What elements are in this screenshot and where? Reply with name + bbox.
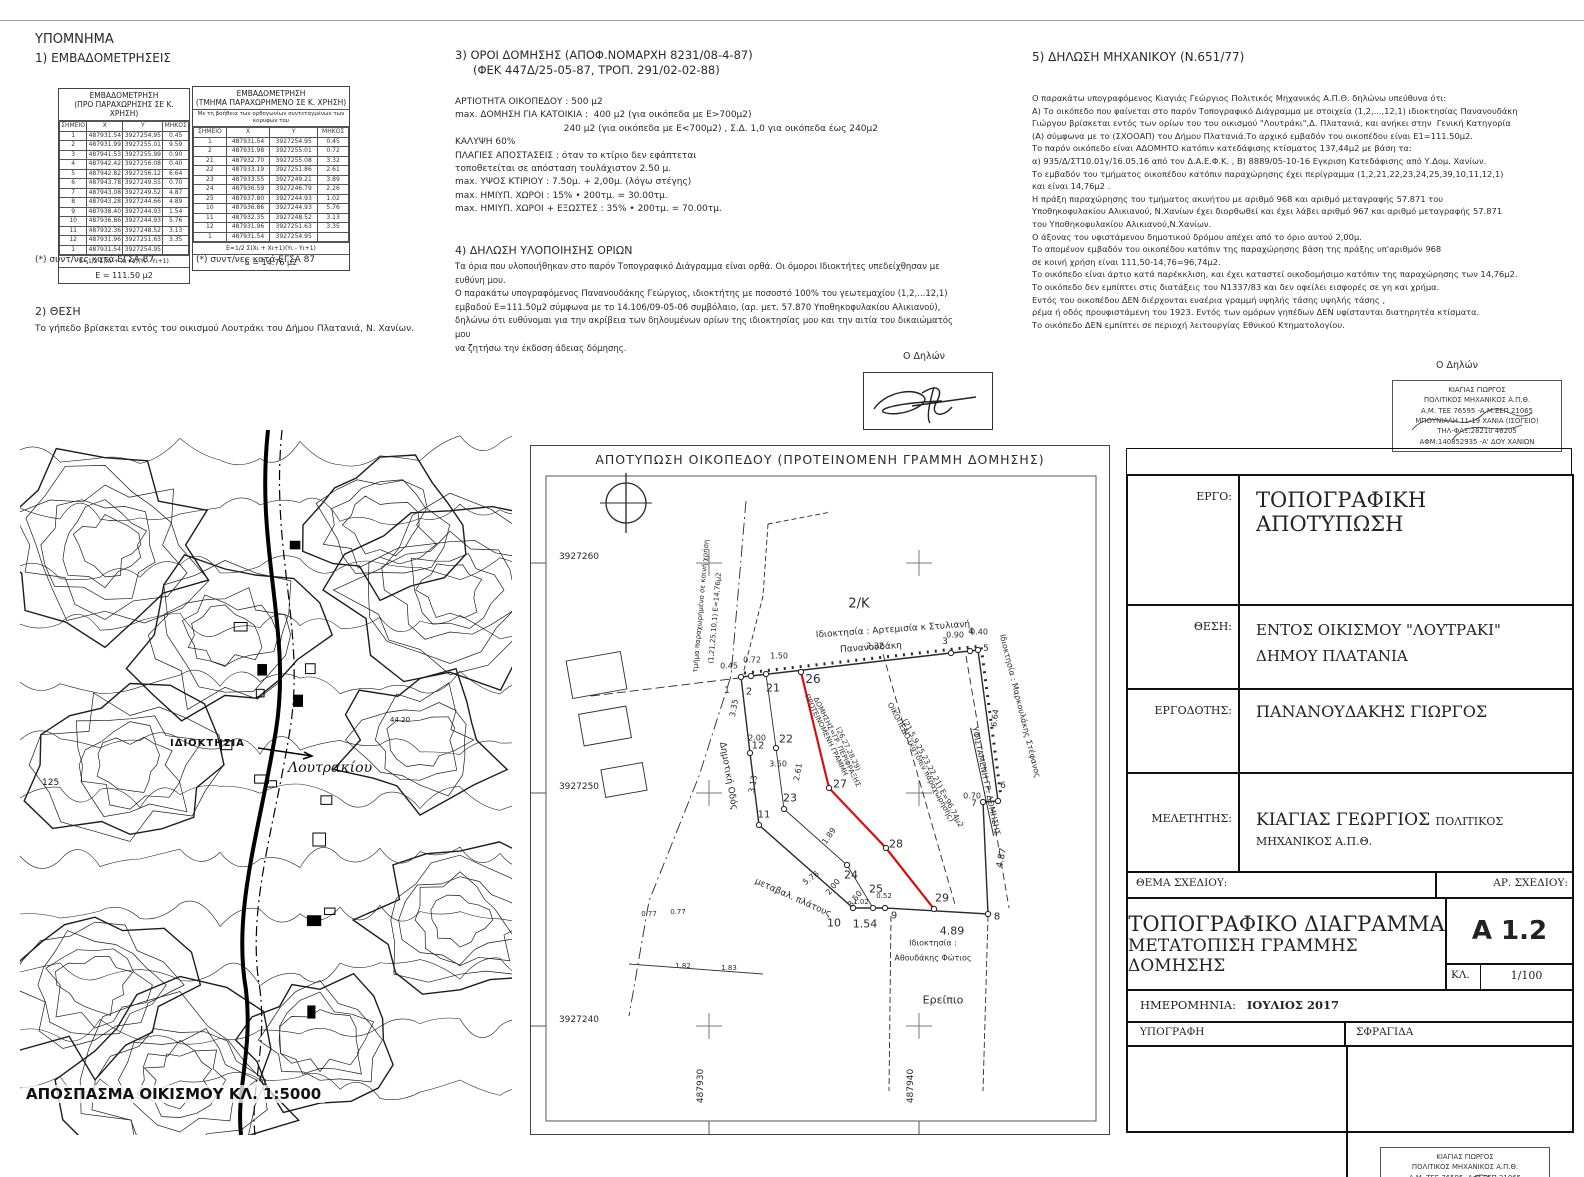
terms-lines: ΑΡΤΙΟΤΗΤΑ ΟΙΚΟΠΕΔΟΥ : 500 μ2max. ΔΟΜΗΣΗ … xyxy=(455,96,935,217)
table-row: 1487931.543927254.950.45 xyxy=(194,137,349,147)
plan-label: Αθουδάκης Φώτιος xyxy=(894,954,971,963)
title-block: ΕΡΓΟ: ΤΟΠΟΓΡΑΦΙΚΗ ΑΠΟΤΥΠΩΣΗ ΘΕΣΗ: ΕΝΤΟΣ … xyxy=(1120,448,1577,1135)
cell: 487936.59 xyxy=(226,185,269,195)
tb-stamp-label: ΣΦΡΑΓΙΔΑ xyxy=(1346,1023,1572,1045)
cell: 7 xyxy=(60,188,87,198)
table-row: 10487936.863927244.935.76 xyxy=(194,204,349,214)
cell: 3.32 xyxy=(318,156,349,166)
table-row: 21487932.703927255.083.32 xyxy=(194,156,349,166)
settlement-map: ΙΔΙΟΚΤΗΣΙΑ Λουτρακίου 44.20 125 ΑΠΟΣΠΑΣΜ… xyxy=(20,430,512,1135)
cell: 3.89 xyxy=(318,175,349,185)
table1-title: ΕΜΒΑΔΟΜΕΤΡΗΣΗ(ΠΡΟ ΠΑΡΑΧΩΡΗΣΗΣ ΣΕ Κ. ΧΡΗΣ… xyxy=(59,89,189,121)
cell: 487931.54 xyxy=(226,137,269,147)
plan-label: 0.72 xyxy=(743,656,761,665)
cell: 2.61 xyxy=(318,166,349,176)
plan-label: 2.61 xyxy=(792,762,804,781)
cell: 3927254.95 xyxy=(270,137,318,147)
table2-subtitle: Με τη βοήθεια των ορθογωνίων συντεταγμέν… xyxy=(193,110,349,127)
cell: 3927248.52 xyxy=(123,226,163,236)
cell: 3927248.52 xyxy=(270,213,318,223)
tb-signature-label: ΥΠΟΓΡΑΦΗ xyxy=(1128,1023,1346,1045)
plan-y-coordinate: 3927240 xyxy=(559,1015,599,1025)
table-row: 3487941.533927255.990.90 xyxy=(60,150,189,160)
cell: 3927256.12 xyxy=(123,169,163,179)
cell: 21 xyxy=(194,156,227,166)
tb-drawing-title: ΤΟΠΟΓΡΑΦΙΚΟ ΔΙΑΓΡΑΜΜΑ ΜΕΤΑΤΟΠΙΣΗ ΓΡΑΜΜΗΣ… xyxy=(1128,899,1447,989)
table2-formula: Ε=1/2 Σ(Χι + Χι+1)(Υι - Υι+1) xyxy=(193,242,349,254)
plan-label: 28 xyxy=(889,838,903,851)
cell: 3927244.93 xyxy=(270,204,318,214)
cell xyxy=(163,245,189,255)
plan-label: 27 xyxy=(833,778,847,791)
section2-title: 2) ΘΕΣΗ xyxy=(35,305,81,318)
tb-row-date: ΗΜΕΡΟΜΗΝΙΑ: ΙΟΥΛΙΟΣ 2017 xyxy=(1128,991,1572,1023)
cell: 10 xyxy=(194,204,227,214)
cell: 2 xyxy=(60,141,87,151)
tb-drawing-title-1: ΤΟΠΟΓΡΑΦΙΚΟ ΔΙΑΓΡΑΜΜΑ xyxy=(1128,912,1444,936)
plan-label: μεταβαλ. πλάτους xyxy=(753,877,833,920)
tb-thesi-line1: ΕΝΤΟΣ ΟΙΚΙΣΜΟΥ "ΛΟΥΤΡΑΚΙ" xyxy=(1256,621,1501,639)
cell: 3.13 xyxy=(318,213,349,223)
plan-label: 0.77 xyxy=(641,910,657,918)
cell: 0.45 xyxy=(318,137,349,147)
tb-label-thesi: ΘΕΣΗ: xyxy=(1128,606,1240,688)
table-row: 11487932.353927248.523.13 xyxy=(194,213,349,223)
engineer-stamp-top: ΚΙΑΓΙΑΣ ΓΙΩΡΓΟΣΠΟΛΙΤΙΚΟΣ ΜΗΧΑΝΙΚΟΣ Α.Π.Θ… xyxy=(1392,380,1562,452)
plan-label: ΥΦΙΣΤΑΜΕΝΗ ΓΡ. ΔΟΜΗΣΗΣ xyxy=(970,726,1002,836)
plan-label: 4.87 xyxy=(995,847,1009,869)
cell: 487932.70 xyxy=(226,156,269,166)
table1: ΣΗΜΕΙΟ Χ Υ ΜΗΚΟΣ 1487931.543927254.950.4… xyxy=(59,121,189,255)
cell: 4 xyxy=(60,160,87,170)
cell: 3.35 xyxy=(318,223,349,233)
plan-label: 4.89 xyxy=(940,925,965,938)
tb-thema-label: ΘΕΜΑ ΣΧΕΔΙΟΥ: xyxy=(1128,873,1437,897)
scan-edge-line xyxy=(0,20,1584,21)
decl-limits-lines: Τα όρια που υλοποιήθηκαν στο παρόν Τοπογ… xyxy=(455,261,955,356)
tb-row-ergo: ΕΡΓΟ: ΤΟΠΟΓΡΑΦΙΚΗ ΑΠΟΤΥΠΩΣΗ xyxy=(1128,476,1572,606)
tb-value-meletitis: ΚΙΑΓΙΑΣ ΓΕΩΡΓΙΟΣ ΠΟΛΙΤΙΚΟΣ ΜΗΧΑΝΙΚΟΣ Α.Π… xyxy=(1240,774,1572,871)
cell: 487932.35 xyxy=(226,213,269,223)
table1-area: Ε = 111.50 μ2 xyxy=(59,267,189,283)
table-row: 1487931.543927254.95 xyxy=(194,232,349,242)
survey-sheet: ΥΠΟΜΝΗΜΑ 1) ΕΜΒΑΔΟΜΕΤΡΗΣΕΙΣ ΕΜΒΑΔΟΜΕΤΡΗΣ… xyxy=(0,0,1584,1177)
cell: 11 xyxy=(194,213,227,223)
plan-label: 3.35 xyxy=(728,698,740,717)
table-row: 22487933.193927251.862.61 xyxy=(194,166,349,176)
cell: 487933.55 xyxy=(226,175,269,185)
plan-x-coordinate: 487940 xyxy=(906,1069,916,1103)
table-row: 12487931.963927251.633.35 xyxy=(194,223,349,233)
cell: 12 xyxy=(194,223,227,233)
plan-label: 2.00 xyxy=(748,734,766,743)
decl-limits-title: 4) ΔΗΛΩΣΗ ΥΛΟΠΟΙΗΣΗΣ ΟΡΙΩΝ xyxy=(455,244,632,257)
cell: 3.13 xyxy=(163,226,189,236)
cell: 3927244.93 xyxy=(270,194,318,204)
plan-label: 5.76 xyxy=(801,869,821,887)
signer-label-middle: Ο Δηλών xyxy=(903,351,945,362)
cell: 0.90 xyxy=(163,150,189,160)
table-row: 8487943.283927244.664.89 xyxy=(60,198,189,208)
cell: 3927249.21 xyxy=(270,175,318,185)
cell: 3927246.79 xyxy=(270,185,318,195)
plan-label: 29 xyxy=(935,892,949,905)
table2-title: ΕΜΒΑΔΟΜΕΤΡΗΣΗ(ΤΜΗΜΑ ΠΑΡΑΧΩΡΗΜΕΝΟ ΣΕ Κ. Χ… xyxy=(193,87,349,110)
cell: 2 xyxy=(194,147,227,157)
table-row: 10487936.863927244.935.76 xyxy=(60,217,189,227)
cell: 487931.96 xyxy=(226,223,269,233)
plan-label: Πανανουδάκη xyxy=(840,641,902,655)
cell: 3927256.08 xyxy=(123,160,163,170)
cell: 3927255.01 xyxy=(270,147,318,157)
cell: 3927255.99 xyxy=(123,150,163,160)
cell: 487942.82 xyxy=(87,169,123,179)
tb-number-cell: Α 1.2 ΚΛ. 1/100 xyxy=(1447,899,1572,989)
cell: 0.72 xyxy=(318,147,349,157)
cell: 487931.96 xyxy=(87,236,123,246)
cell: 3927244.93 xyxy=(123,217,163,227)
plan-label: 3.50 xyxy=(769,760,787,769)
cell: 1 xyxy=(60,131,87,141)
table1-footnote: (*) συντ/νες κατά ΕΓΣΑ 87 xyxy=(35,255,154,265)
cell: 487943.08 xyxy=(87,188,123,198)
table-row: 11487932.363927248.523.13 xyxy=(60,226,189,236)
table-row: 6487943.783927249.550.70 xyxy=(60,179,189,189)
cell: 23 xyxy=(194,175,227,185)
tb-scale-label: ΚΛ. xyxy=(1447,965,1481,989)
tb-date-value: ΙΟΥΛΙΟΣ 2017 xyxy=(1247,998,1339,1012)
engineer-stamp-bottom: ΚΙΑΓΙΑΣ ΓΙΩΡΓΟΣΠΟΛΙΤΙΚΟΣ ΜΗΧΑΝΙΚΟΣ Α.Π.Θ… xyxy=(1380,1147,1550,1177)
cell: 4.89 xyxy=(163,198,189,208)
tb-row-thesi: ΘΕΣΗ: ΕΝΤΟΣ ΟΙΚΙΣΜΟΥ "ΛΟΥΤΡΑΚΙ" ΔΗΜΟΥ ΠΛ… xyxy=(1128,606,1572,690)
tb-thesi-line2: ΔΗΜΟΥ ΠΛΑΤΑΝΙΑ xyxy=(1256,647,1408,665)
plan-label: 23 xyxy=(783,792,797,805)
plan-label: 3.13 xyxy=(747,774,759,793)
plan-label: 0.52 xyxy=(876,892,892,900)
plan-label: 6.64 xyxy=(989,709,1000,728)
plan-label: 24 xyxy=(844,869,858,882)
cell: 1.54 xyxy=(163,207,189,217)
table-row: 5487942.823927256.126.64 xyxy=(60,169,189,179)
cell: 9.59 xyxy=(163,141,189,151)
col-header: ΜΗΚΟΣ xyxy=(163,122,189,132)
tb-row-ergodotis: ΕΡΓΟΔΟΤΗΣ: ΠΑΝΑΝΟΥΔΑΚΗΣ ΓΙΩΡΓΟΣ xyxy=(1128,690,1572,774)
table-row: 4487942.423927256.080.40 xyxy=(60,160,189,170)
cell: 487931.54 xyxy=(87,245,123,255)
tb-scale-value: 1/100 xyxy=(1481,965,1572,989)
plan-label: 1 xyxy=(724,686,730,696)
site-plan: ΑΠΟΤΥΠΩΣΗ ΟΙΚΟΠΕΔΟΥ (ΠΡΟΤΕΙΝΟΜΕΝΗ ΓΡΑΜΜΗ… xyxy=(530,445,1110,1135)
col-header: Υ xyxy=(123,122,163,132)
cell: 487943.78 xyxy=(87,179,123,189)
table-row: 24487936.593927246.792.26 xyxy=(194,185,349,195)
contour-map-icon xyxy=(20,430,512,1135)
table-row: 1487931.543927254.950.45 xyxy=(60,131,189,141)
plan-label: 22 xyxy=(779,733,793,746)
tb-drawing-title-2: ΜΕΤΑΤΟΠΙΣΗ ΓΡΑΜΜΗΣ ΔΟΜΗΣΗΣ xyxy=(1128,936,1445,976)
terms-title-2: (ΦΕΚ 447Δ/25-05-87, ΤΡΟΠ. 291/02-02-88) xyxy=(473,63,720,77)
col-header: Χ xyxy=(87,122,123,132)
terms-title-1: 3) ΟΡΟΙ ΔΟΜΗΣΗΣ (ΑΠΟΦ.ΝΟΜΑΡΧΗ 8231/08-4-… xyxy=(455,48,753,62)
decl-engineer-title: 5) ΔΗΛΩΣΗ ΜΗΧΑΝΙΚΟΥ (Ν.651/77) xyxy=(1032,50,1244,64)
cell: 3927244.66 xyxy=(123,198,163,208)
table-row: 25487937.803927244.931.02 xyxy=(194,194,349,204)
cell: 487933.19 xyxy=(226,166,269,176)
plan-label: Δημοτική Οδός xyxy=(717,741,739,811)
signature-icon xyxy=(864,373,992,429)
cell: 3927254.95 xyxy=(123,131,163,141)
signature-box xyxy=(863,372,993,430)
map-elevation-label: 44.20 xyxy=(390,716,410,724)
plan-label: 0.90 xyxy=(946,631,964,640)
cell: 24 xyxy=(194,185,227,195)
map-property-label: ΙΔΙΟΚΤΗΣΙΑ xyxy=(170,738,245,749)
map-place-label: Λουτρακίου xyxy=(288,760,372,776)
cell: 487931.99 xyxy=(87,141,123,151)
cell: 3927249.52 xyxy=(123,188,163,198)
cell: 3927251.63 xyxy=(270,223,318,233)
plan-label: ΔΟΜΗΣΗΣ=ΓΡ. ΠΕΡΙΦΡΑΞΗΣ xyxy=(812,696,862,788)
plan-label: 0.77 xyxy=(670,908,686,916)
tb-row-thema: ΤΟΠΟΓΡΑΦΙΚΟ ΔΙΑΓΡΑΜΜΑ ΜΕΤΑΤΟΠΙΣΗ ΓΡΑΜΜΗΣ… xyxy=(1128,899,1572,991)
plan-label: 2 xyxy=(746,687,752,698)
signer-label-right: Ο Δηλών xyxy=(1436,360,1478,371)
cell: 3927244.93 xyxy=(123,207,163,217)
plan-label: 2.00 xyxy=(824,877,842,897)
cell: 10 xyxy=(60,217,87,227)
cell: 11 xyxy=(60,226,87,236)
col-header: ΜΗΚΟΣ xyxy=(318,128,349,138)
table2-footnote: (*) συντ/νες κατά ΕΓΣΑ 87 xyxy=(196,255,315,265)
plan-label: 6 xyxy=(1000,781,1006,791)
cell: 487936.86 xyxy=(226,204,269,214)
col-header: ΣΗΜΕΙΟ xyxy=(194,128,227,138)
cell: 12 xyxy=(60,236,87,246)
plan-label: 1.89 xyxy=(820,826,838,846)
table-row: 1487931.543927254.95 xyxy=(60,245,189,255)
tb-row-sig-area: ΚΙΑΓΙΑΣ ΓΙΩΡΓΟΣΠΟΛΙΤΙΚΟΣ ΜΗΧΑΝΙΚΟΣ Α.Π.Θ… xyxy=(1128,1047,1572,1177)
cell: 3927255.08 xyxy=(270,156,318,166)
plan-label: 9 xyxy=(891,911,897,922)
plan-label: 21 xyxy=(766,682,780,695)
tb-date: ΗΜΕΡΟΜΗΝΙΑ: ΙΟΥΛΙΟΣ 2017 xyxy=(1128,991,1339,1021)
cell: 487936.86 xyxy=(87,217,123,227)
cell: 487931.98 xyxy=(226,147,269,157)
cell: 487931.54 xyxy=(87,131,123,141)
col-header: ΣΗΜΕΙΟ xyxy=(60,122,87,132)
cell: 3927255.01 xyxy=(123,141,163,151)
section2-text: Το γήπεδο βρίσκεται εντός του οικισμού Λ… xyxy=(35,324,414,334)
tb-label-ergo: ΕΡΓΟ: xyxy=(1128,476,1240,604)
map-contour-label: 125 xyxy=(42,778,59,788)
plan-y-coordinate: 3927250 xyxy=(559,782,599,792)
tb-signature-area xyxy=(1128,1047,1348,1177)
cell: 487938.40 xyxy=(87,207,123,217)
cell: 3927249.55 xyxy=(123,179,163,189)
tb-row-meletitis: ΜΕΛΕΤΗΤΗΣ: ΚΙΑΓΙΑΣ ΓΕΩΡΓΙΟΣ ΠΟΛΙΤΙΚΟΣ ΜΗ… xyxy=(1128,774,1572,873)
cell: 487941.53 xyxy=(87,150,123,160)
title-block-top-strip xyxy=(1126,448,1572,475)
plan-label: Ερείπιο xyxy=(923,994,964,1007)
plan-label: (21,5,9,25,23,22,21) Ε=96,74μ2 xyxy=(900,717,965,829)
cell: 0.70 xyxy=(163,179,189,189)
plan-label: Ιδιοκτησία : Μαρκουλάκης Στέφανος xyxy=(998,633,1042,778)
cell: 3927254.95 xyxy=(270,232,318,242)
cell: 5.76 xyxy=(163,217,189,227)
tb-stamp-area: ΚΙΑΓΙΑΣ ΓΙΩΡΓΟΣΠΟΛΙΤΙΚΟΣ ΜΗΧΑΝΙΚΟΣ Α.Π.Θ… xyxy=(1348,1047,1572,1177)
cell: 3927254.95 xyxy=(123,245,163,255)
cell: 3927251.63 xyxy=(123,236,163,246)
tb-drawing-number: Α 1.2 xyxy=(1447,899,1572,963)
tb-value-ergodotis: ΠΑΝΑΝΟΥΔΑΚΗΣ ΓΙΩΡΓΟΣ xyxy=(1240,690,1572,772)
plan-label: 11 xyxy=(758,810,771,821)
table-row: 7487943.083927249.524.87 xyxy=(60,188,189,198)
legend-title: ΥΠΟΜΝΗΜΑ xyxy=(35,32,114,47)
plan-label-layer: 1221263456789101.541112222324252728290.4… xyxy=(531,446,1109,1134)
table-row: 2487931.983927255.010.72 xyxy=(194,147,349,157)
cell: 2.26 xyxy=(318,185,349,195)
table-row: 12487931.963927251.633.35 xyxy=(60,236,189,246)
tb-meletitis-name: ΚΙΑΓΙΑΣ ΓΕΩΡΓΙΟΣ xyxy=(1256,810,1430,830)
cell xyxy=(318,232,349,242)
plan-label: 1.54 xyxy=(853,918,878,931)
cell: 5.76 xyxy=(318,204,349,214)
plan-label: 1.82 xyxy=(675,962,691,970)
cell: 487931.54 xyxy=(226,232,269,242)
area-table-ceded: ΕΜΒΑΔΟΜΕΤΡΗΣΗ(ΤΜΗΜΑ ΠΑΡΑΧΩΡΗΜΕΝΟ ΣΕ Κ. Χ… xyxy=(192,86,350,271)
tb-ar-label: ΑΡ. ΣΧΕΔΙΟΥ: xyxy=(1437,873,1572,897)
plan-label: 2/Κ xyxy=(848,597,869,612)
cell: 9 xyxy=(60,207,87,217)
cell: 1 xyxy=(194,232,227,242)
decl-engineer-lines: Ο παρακάτω υπογραφόμενος Κιαγιάς Γεώργιο… xyxy=(1032,92,1562,331)
cell: 22 xyxy=(194,166,227,176)
cell: 487937.80 xyxy=(226,194,269,204)
cell: 487932.36 xyxy=(87,226,123,236)
cell: 8 xyxy=(60,198,87,208)
plan-label: 26 xyxy=(805,672,820,686)
plan-label: 0.40 xyxy=(970,628,988,637)
plan-label: (1,21,25,10,1) Ε=14,76μ2 xyxy=(707,572,723,664)
cell: 6 xyxy=(60,179,87,189)
tb-scale-row: ΚΛ. 1/100 xyxy=(1447,963,1572,989)
table-row: 23487933.553927249.213.89 xyxy=(194,175,349,185)
plan-label: 1.50 xyxy=(770,652,788,661)
cell: 487942.42 xyxy=(87,160,123,170)
map-caption: ΑΠΟΣΠΑΣΜΑ ΟΙΚΙΣΜΟΥ ΚΛ. 1:5000 xyxy=(22,1085,325,1103)
table-row: 9487938.403927244.931.54 xyxy=(60,207,189,217)
plan-label: 8 xyxy=(994,912,1000,923)
tb-value-thesi: ΕΝΤΟΣ ΟΙΚΙΣΜΟΥ "ΛΟΥΤΡΑΚΙ" ΔΗΜΟΥ ΠΛΑΤΑΝΙΑ xyxy=(1240,606,1572,688)
plan-y-coordinate: 3927260 xyxy=(559,552,599,562)
cell: 0.40 xyxy=(163,160,189,170)
cell: 3927251.86 xyxy=(270,166,318,176)
table-row: 2487931.993927255.019.59 xyxy=(60,141,189,151)
tb-label-ergodotis: ΕΡΓΟΔΟΤΗΣ: xyxy=(1128,690,1240,772)
cell: 25 xyxy=(194,194,227,204)
tb-label-meletitis: ΜΕΛΕΤΗΤΗΣ: xyxy=(1128,774,1240,871)
cell: 0.45 xyxy=(163,131,189,141)
tb-value-ergo: ΤΟΠΟΓΡΑΦΙΚΗ ΑΠΟΤΥΠΩΣΗ xyxy=(1240,476,1572,604)
tb-row-sig-header: ΥΠΟΓΡΑΦΗ ΣΦΡΑΓΙΔΑ xyxy=(1128,1023,1572,1047)
plan-label: 0.45 xyxy=(720,662,738,671)
col-header: Υ xyxy=(270,128,318,138)
plan-label: 0.70 xyxy=(963,792,981,801)
plan-label: 5 xyxy=(983,644,989,654)
cell: 1 xyxy=(194,137,227,147)
cell: 6.64 xyxy=(163,169,189,179)
tb-row-thema-header: ΘΕΜΑ ΣΧΕΔΙΟΥ: ΑΡ. ΣΧΕΔΙΟΥ: xyxy=(1128,873,1572,899)
plan-label: Ιδιοκτησία : xyxy=(909,939,957,948)
col-header: Χ xyxy=(226,128,269,138)
cell: 487943.28 xyxy=(87,198,123,208)
table2: ΣΗΜΕΙΟ Χ Υ ΜΗΚΟΣ 1487931.543927254.950.4… xyxy=(193,127,349,242)
cell: 1 xyxy=(60,245,87,255)
cell: 3.35 xyxy=(163,236,189,246)
cell: 3 xyxy=(60,150,87,160)
plan-x-coordinate: 487930 xyxy=(696,1069,706,1103)
plan-label: 7 xyxy=(971,799,977,809)
tb-date-label: ΗΜΕΡΟΜΗΝΙΑ: xyxy=(1140,998,1236,1012)
legend-section1-title: 1) ΕΜΒΑΔΟΜΕΤΡΗΣΕΙΣ xyxy=(35,51,171,65)
cell: 4.87 xyxy=(163,188,189,198)
cell: 1.02 xyxy=(318,194,349,204)
plan-label: 1.83 xyxy=(721,964,737,972)
cell: 5 xyxy=(60,169,87,179)
